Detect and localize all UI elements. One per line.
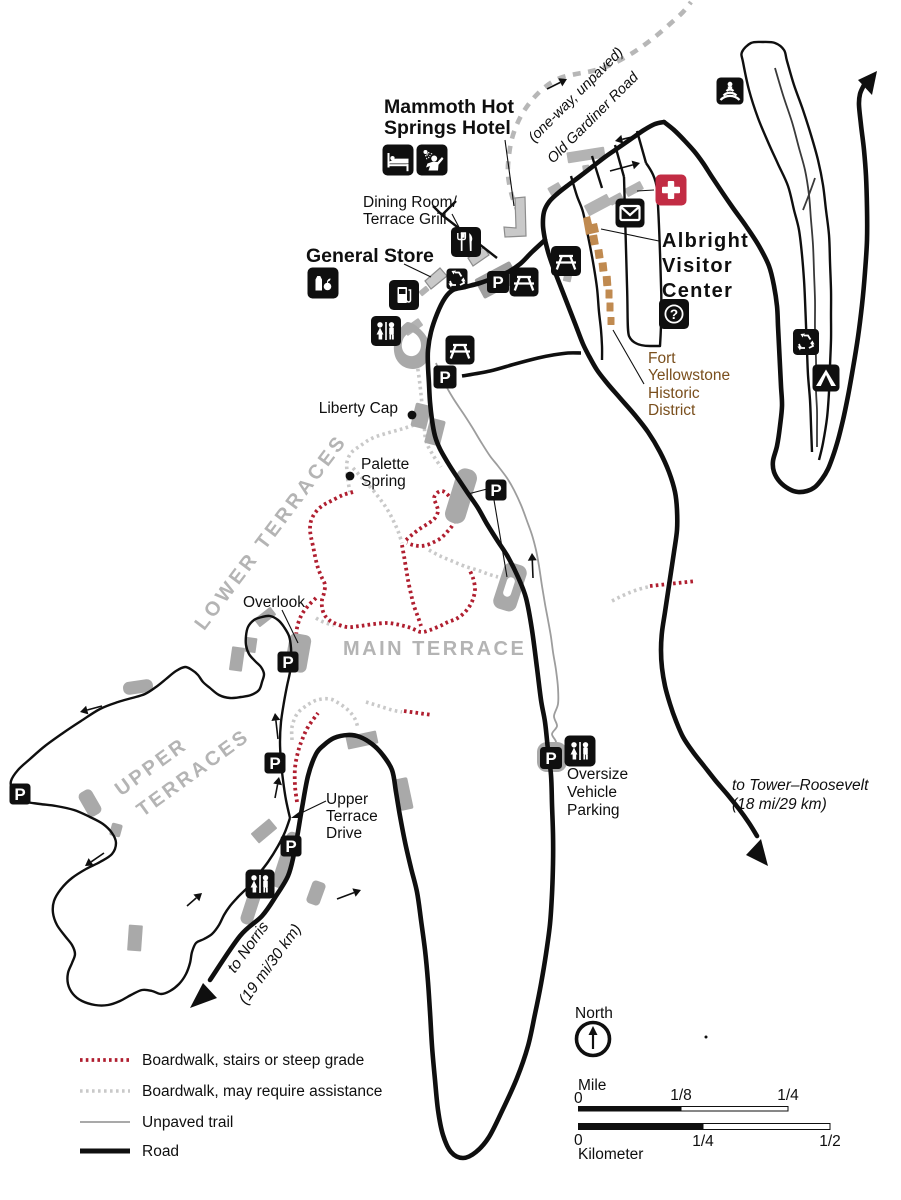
svg-text:Terrace Grill: Terrace Grill bbox=[363, 211, 447, 228]
svg-text:1/4: 1/4 bbox=[777, 1087, 799, 1104]
svg-text:(18 mi/29 km): (18 mi/29 km) bbox=[732, 796, 827, 813]
svg-text:0: 0 bbox=[574, 1090, 583, 1107]
svg-text:Yellowstone: Yellowstone bbox=[648, 367, 730, 384]
svg-text:Fort: Fort bbox=[648, 350, 676, 367]
svg-text:District: District bbox=[648, 402, 696, 419]
svg-text:Albright: Albright bbox=[662, 230, 749, 252]
svg-text:Liberty Cap: Liberty Cap bbox=[319, 400, 398, 417]
svg-text:P: P bbox=[439, 368, 450, 387]
svg-text:Oversize: Oversize bbox=[567, 766, 628, 783]
svg-text:P: P bbox=[545, 749, 556, 768]
svg-text:Visitor: Visitor bbox=[662, 255, 733, 277]
svg-text:P: P bbox=[269, 754, 280, 773]
svg-text:MAIN TERRACE: MAIN TERRACE bbox=[343, 638, 526, 660]
svg-text:Overlook: Overlook bbox=[243, 594, 305, 611]
svg-text:Parking: Parking bbox=[567, 802, 620, 819]
svg-text:North: North bbox=[575, 1005, 613, 1022]
svg-text:Upper: Upper bbox=[326, 791, 368, 808]
svg-text:Kilometer: Kilometer bbox=[578, 1146, 643, 1163]
svg-text:Palette: Palette bbox=[361, 456, 409, 473]
svg-text:P: P bbox=[492, 273, 503, 292]
svg-text:Boardwalk, may require assista: Boardwalk, may require assistance bbox=[142, 1083, 382, 1100]
svg-text:Terrace: Terrace bbox=[326, 808, 378, 825]
svg-text:to Tower–Roosevelt: to Tower–Roosevelt bbox=[732, 777, 869, 794]
svg-text:P: P bbox=[14, 785, 25, 804]
svg-text:Road: Road bbox=[142, 1143, 179, 1160]
svg-text:P: P bbox=[282, 653, 293, 672]
svg-text:1/2: 1/2 bbox=[819, 1133, 841, 1150]
svg-text:Unpaved trail: Unpaved trail bbox=[142, 1114, 233, 1131]
svg-text:P: P bbox=[285, 837, 296, 856]
svg-text:Center: Center bbox=[662, 280, 733, 302]
svg-text:?: ? bbox=[670, 307, 678, 322]
svg-text:Drive: Drive bbox=[326, 825, 362, 842]
svg-text:1/8: 1/8 bbox=[670, 1087, 692, 1104]
svg-text:Historic: Historic bbox=[648, 385, 700, 402]
svg-text:Dining Room/: Dining Room/ bbox=[363, 194, 458, 211]
svg-text:Vehicle: Vehicle bbox=[567, 784, 617, 801]
svg-text:1/4: 1/4 bbox=[692, 1133, 714, 1150]
svg-text:P: P bbox=[490, 481, 501, 500]
svg-text:Mammoth Hot: Mammoth Hot bbox=[384, 96, 514, 118]
svg-text:Springs Hotel: Springs Hotel bbox=[384, 117, 511, 139]
svg-text:Boardwalk, stairs or steep gra: Boardwalk, stairs or steep grade bbox=[142, 1052, 364, 1069]
svg-text:Spring: Spring bbox=[361, 473, 406, 490]
svg-text:General Store: General Store bbox=[306, 245, 434, 267]
